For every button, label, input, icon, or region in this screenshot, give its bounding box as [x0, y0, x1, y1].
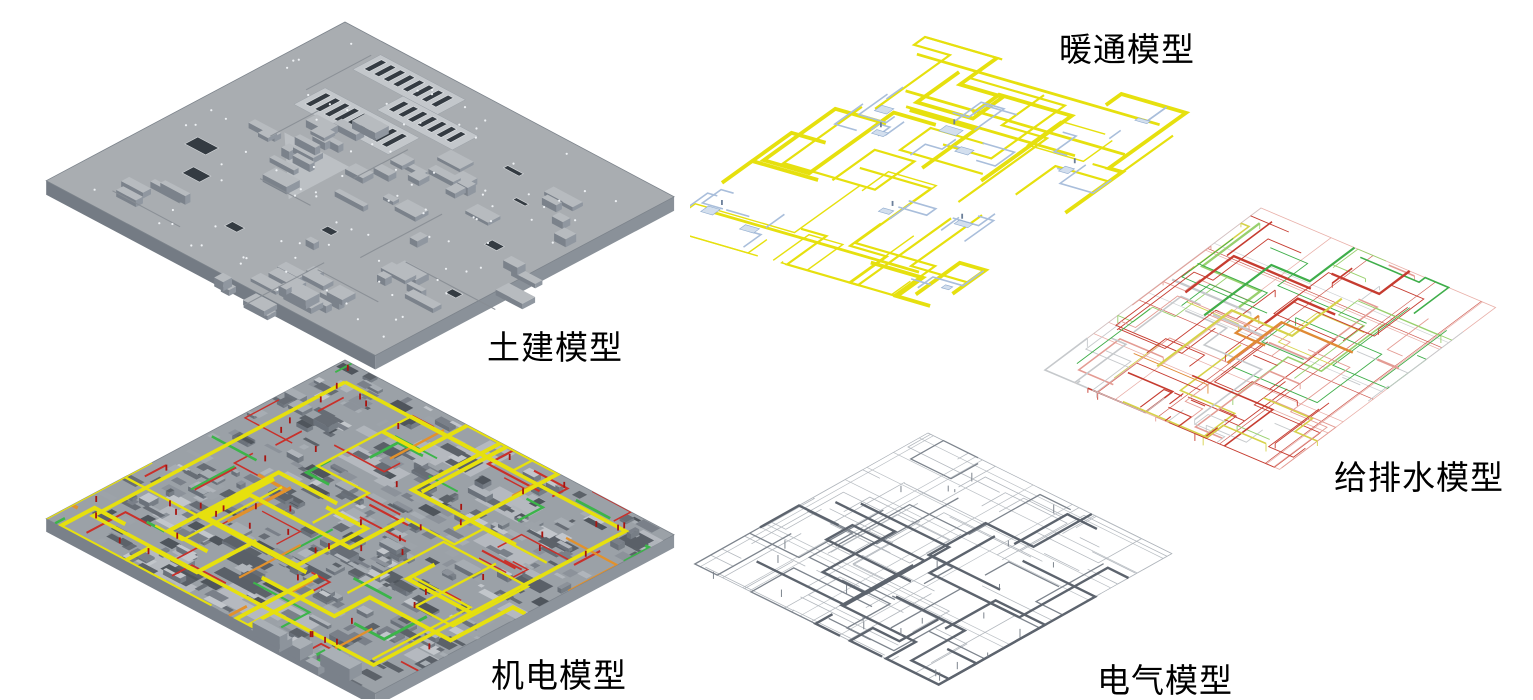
mep-model-label: 机电模型 — [491, 657, 627, 695]
civil-model-label: 土建模型 — [487, 329, 623, 367]
civil-model-illustration — [35, 12, 695, 378]
plumbing-model-label: 给排水模型 — [1334, 459, 1504, 497]
civil-model-panel — [35, 12, 695, 378]
electrical-model-illustration — [675, 423, 1223, 697]
mep-model-illustration — [35, 350, 695, 699]
mep-model-panel — [35, 350, 695, 699]
hvac-model-label: 暖通模型 — [1059, 31, 1195, 69]
page-root: 土建模型 机电模型 暖通模型 给排水模型 电气模型 — [0, 0, 1533, 699]
electrical-model-panel — [675, 423, 1223, 697]
electrical-model-label: 电气模型 — [1097, 662, 1233, 700]
